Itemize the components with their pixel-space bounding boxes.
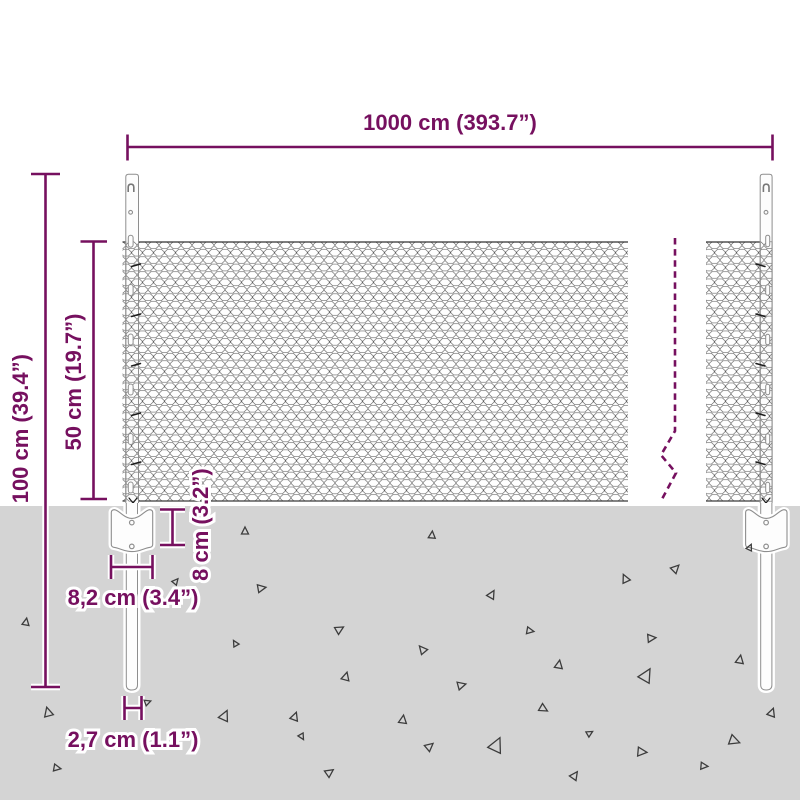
svg-text:50 cm (19.7”): 50 cm (19.7”)	[61, 314, 86, 451]
svg-text:100 cm (39.4”): 100 cm (39.4”)	[8, 354, 33, 503]
svg-text:1000 cm (393.7”): 1000 cm (393.7”)	[363, 110, 537, 135]
svg-text:2,7 cm (1.1”): 2,7 cm (1.1”)	[68, 727, 199, 752]
svg-text:8,2 cm (3.4”): 8,2 cm (3.4”)	[68, 585, 199, 610]
svg-text:8 cm (3.2”): 8 cm (3.2”)	[188, 468, 213, 581]
